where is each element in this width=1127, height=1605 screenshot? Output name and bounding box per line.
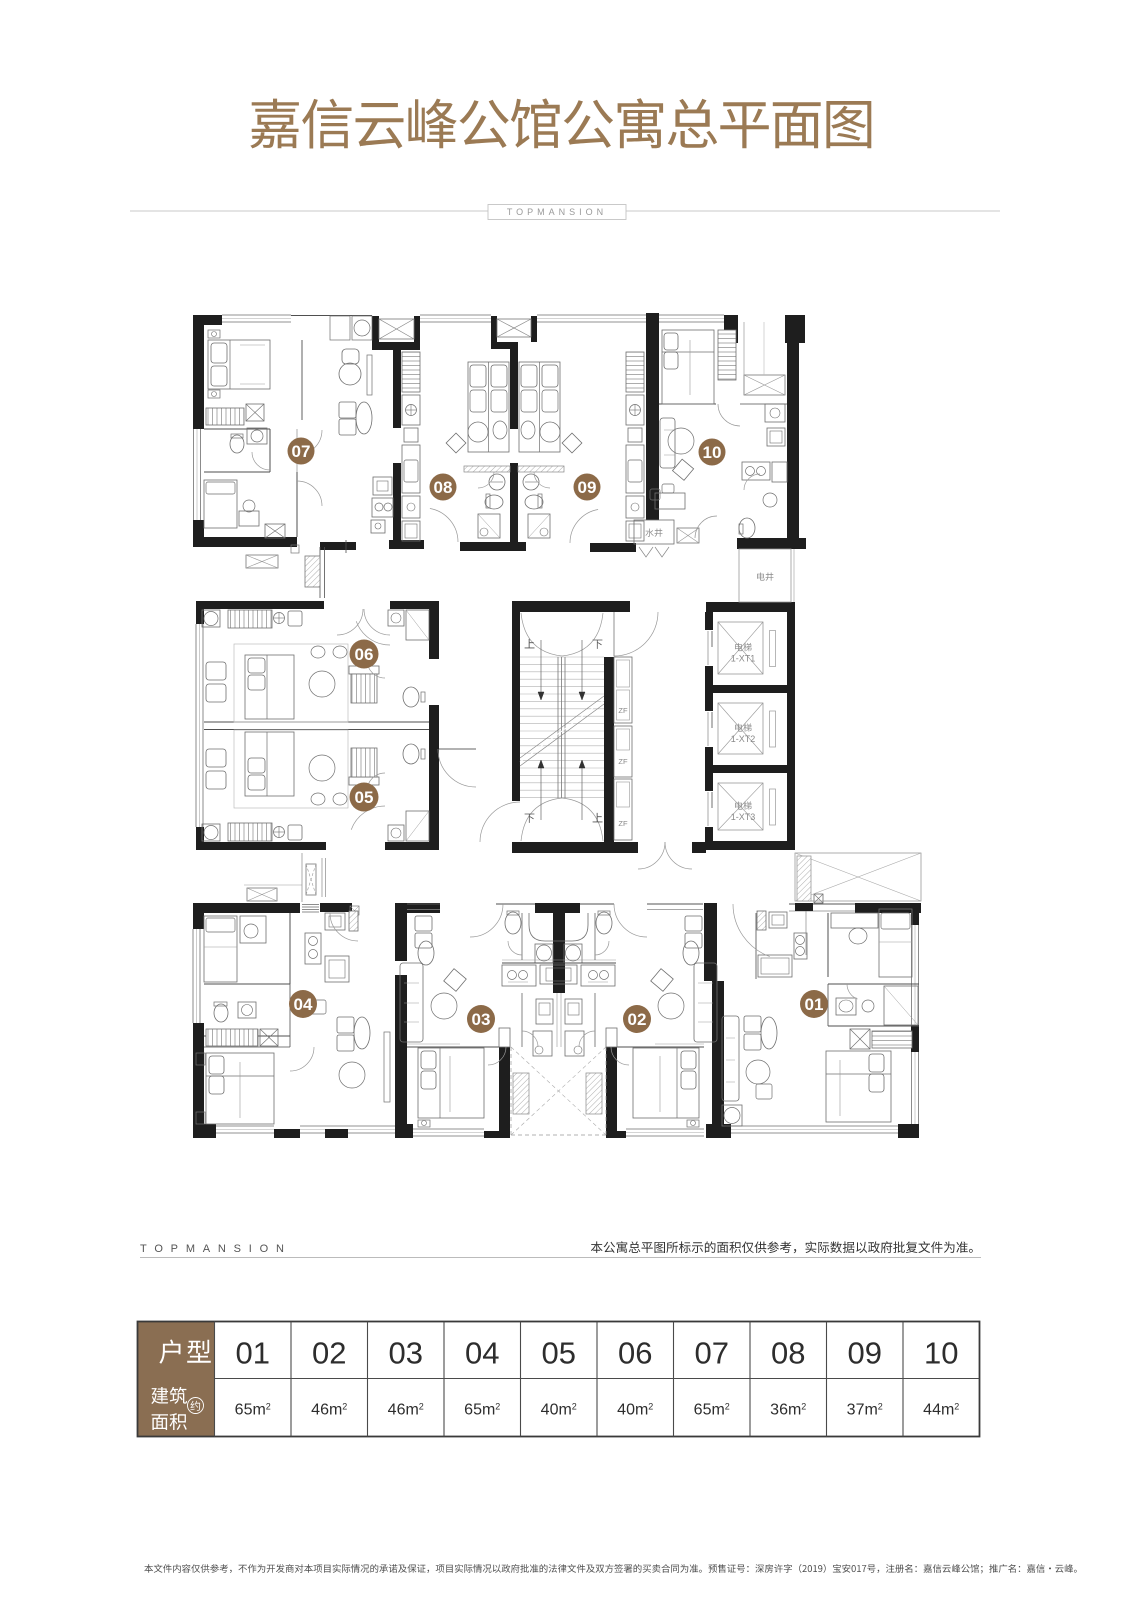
svg-text:ZF: ZF [618, 757, 628, 766]
svg-text:06: 06 [618, 1336, 652, 1371]
svg-text:02: 02 [312, 1336, 346, 1371]
svg-text:65m2: 65m2 [694, 1402, 730, 1419]
svg-text:08: 08 [434, 478, 453, 497]
svg-text:36m2: 36m2 [770, 1402, 806, 1419]
svg-text:07: 07 [695, 1336, 729, 1371]
svg-text:06: 06 [355, 645, 374, 664]
svg-text:1-XT3: 1-XT3 [731, 812, 756, 822]
svg-text:01: 01 [236, 1336, 270, 1371]
svg-text:10: 10 [703, 443, 722, 462]
svg-text:09: 09 [848, 1336, 882, 1371]
svg-text:1-XT2: 1-XT2 [731, 734, 756, 744]
svg-text:04: 04 [465, 1336, 499, 1371]
svg-text:1-XT1: 1-XT1 [731, 654, 756, 664]
svg-text:44m2: 44m2 [923, 1402, 959, 1419]
svg-text:46m2: 46m2 [311, 1402, 347, 1419]
svg-text:05: 05 [542, 1336, 576, 1371]
svg-text:01: 01 [805, 995, 824, 1014]
svg-text:03: 03 [389, 1336, 423, 1371]
svg-text:65m2: 65m2 [235, 1402, 271, 1419]
svg-text:02: 02 [628, 1010, 647, 1029]
svg-text:40m2: 40m2 [541, 1402, 577, 1419]
svg-text:ZF: ZF [618, 706, 628, 715]
svg-text:09: 09 [578, 478, 597, 497]
svg-text:TOPMANSION: TOPMANSION [507, 207, 607, 217]
svg-text:TOPMANSION: TOPMANSION [140, 1243, 292, 1255]
svg-text:05: 05 [355, 788, 374, 807]
svg-text:10: 10 [924, 1336, 958, 1371]
svg-text:46m2: 46m2 [388, 1402, 424, 1419]
svg-text:40m2: 40m2 [617, 1402, 653, 1419]
svg-text:65m2: 65m2 [464, 1402, 500, 1419]
svg-text:37m2: 37m2 [847, 1402, 883, 1419]
svg-text:ZF: ZF [618, 819, 628, 828]
svg-text:07: 07 [292, 442, 311, 461]
svg-text:04: 04 [294, 995, 313, 1014]
svg-text:08: 08 [771, 1336, 805, 1371]
svg-text:03: 03 [472, 1010, 491, 1029]
